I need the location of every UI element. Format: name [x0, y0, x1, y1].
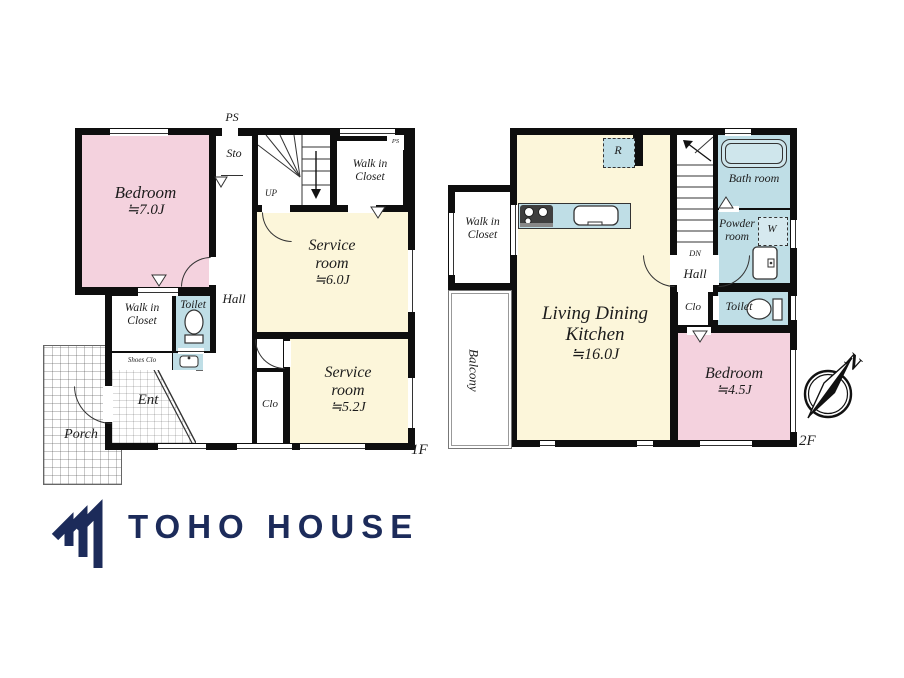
window: [791, 296, 798, 320]
compass-north-indicator: N: [798, 342, 866, 436]
bedroom-label: Bedroom ≒7.0J: [82, 183, 209, 219]
toho-house-logo-mark: [50, 496, 116, 572]
window: [340, 129, 395, 136]
floor-1f-label: 1F: [411, 442, 451, 459]
window: [237, 444, 292, 451]
room-name: Service room: [292, 237, 372, 273]
door-swing-marker: [151, 274, 167, 287]
window: [725, 129, 751, 136]
room-name: Bedroom: [680, 365, 788, 383]
stairs-up-label: UP: [256, 188, 286, 198]
room-area: ≒16.0J: [520, 346, 670, 364]
living-dining-kitchen-2f: [517, 135, 670, 440]
toilet-label: Toilet: [172, 299, 214, 312]
walk-in-closet-upper-label: Walk in Closet: [340, 158, 400, 184]
storage-label: Sto: [216, 147, 252, 160]
door-gap: [284, 341, 291, 367]
door-swing-marker: [214, 176, 228, 188]
bathtub-inner: [725, 143, 783, 164]
ldk-label: Living Dining Kitchen ≒16.0J: [520, 303, 670, 363]
stairs-down-label: DN: [677, 249, 713, 259]
window: [511, 205, 518, 255]
ps-duct-gap: [222, 128, 238, 136]
washer-label: W: [758, 223, 786, 235]
porch-label: Porch: [45, 427, 117, 443]
walk-in-closet-lower-label: Walk in Closet: [114, 302, 170, 328]
hall-2f-label: Hall: [677, 267, 713, 282]
walk-in-closet-2f-label: Walk in Closet: [456, 216, 509, 242]
bathtub: [721, 139, 787, 168]
window: [540, 441, 555, 448]
window: [700, 441, 752, 448]
room-name: Bedroom: [82, 183, 209, 202]
toho-house-logo-text: TOHO HOUSE: [128, 508, 419, 546]
shoes-closet-label: Shoes Clo: [110, 357, 174, 365]
door-swing-marker: [370, 206, 386, 219]
room-name: Living Dining Kitchen: [520, 303, 670, 346]
closet-2f-label: Clo: [678, 301, 708, 313]
window: [791, 220, 798, 248]
powder-room-label: Powder room: [712, 218, 762, 244]
hall-1f: [216, 177, 252, 443]
floor-plan-page: Bedroom ≒7.0J Service room ≒6.0J Service…: [0, 0, 904, 678]
room-area: ≒4.5J: [680, 383, 788, 399]
service-room-lower-label: Service room ≒5.2J: [292, 364, 404, 415]
bath-room-label: Bath room: [726, 172, 782, 185]
washbasin-icon: [178, 354, 200, 369]
closet-label: Clo: [255, 398, 285, 410]
room-name: Service room: [308, 364, 388, 400]
window: [408, 250, 415, 312]
bedroom-2f-label: Bedroom ≒4.5J: [680, 365, 788, 399]
window: [791, 350, 798, 432]
balcony-label: Balcony: [466, 318, 481, 422]
room-area: ≒6.0J: [272, 273, 392, 289]
window: [300, 444, 365, 451]
stairs-down-treads: [677, 135, 713, 253]
toilet-2f-label: Toilet: [718, 300, 760, 313]
toilet-icon: [181, 308, 207, 346]
kitchen-counter: [518, 203, 631, 229]
window: [449, 213, 456, 275]
closet-sliding-door: [138, 288, 178, 296]
service-room-upper-label: Service room ≒6.0J: [272, 237, 392, 288]
refrigerator-label: R: [603, 144, 633, 157]
room-area: ≒7.0J: [82, 202, 209, 219]
entrance-label: Ent: [118, 392, 178, 409]
hall-label: Hall: [214, 292, 254, 307]
entrance-sliding-door: [158, 444, 206, 451]
ps-duct-label: PS: [206, 111, 258, 124]
door-swing-marker: [692, 330, 708, 343]
ps-corner-label: PS: [387, 138, 404, 145]
washbasin-icon: [752, 246, 779, 281]
door-swing-marker: [718, 196, 734, 209]
window: [110, 129, 168, 136]
window: [637, 441, 653, 448]
room-area: ≒5.2J: [292, 400, 404, 416]
window: [408, 378, 415, 428]
